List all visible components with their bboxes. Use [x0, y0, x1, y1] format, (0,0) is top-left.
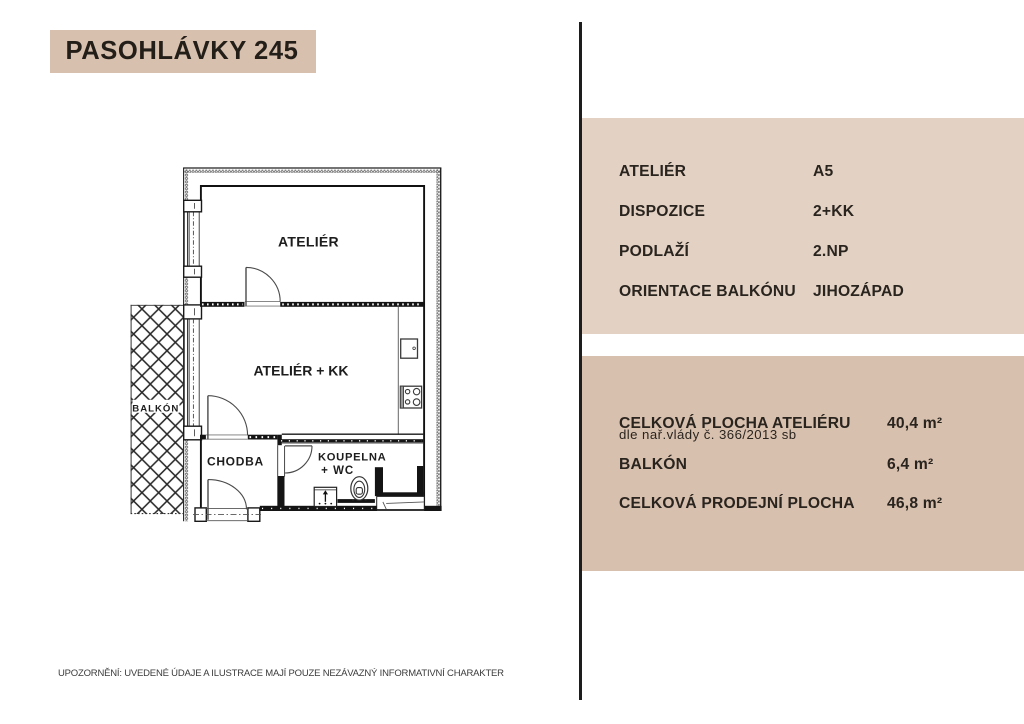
svg-text:KOUPELNA: KOUPELNA — [318, 451, 386, 463]
svg-text:CHODBA: CHODBA — [207, 454, 264, 468]
svg-text:BALKÓN: BALKÓN — [132, 403, 179, 415]
svg-text:ATELIÉR: ATELIÉR — [278, 234, 339, 250]
svg-text:ATELIÉR + KK: ATELIÉR + KK — [253, 363, 348, 379]
svg-text:+ WC: + WC — [321, 465, 354, 477]
